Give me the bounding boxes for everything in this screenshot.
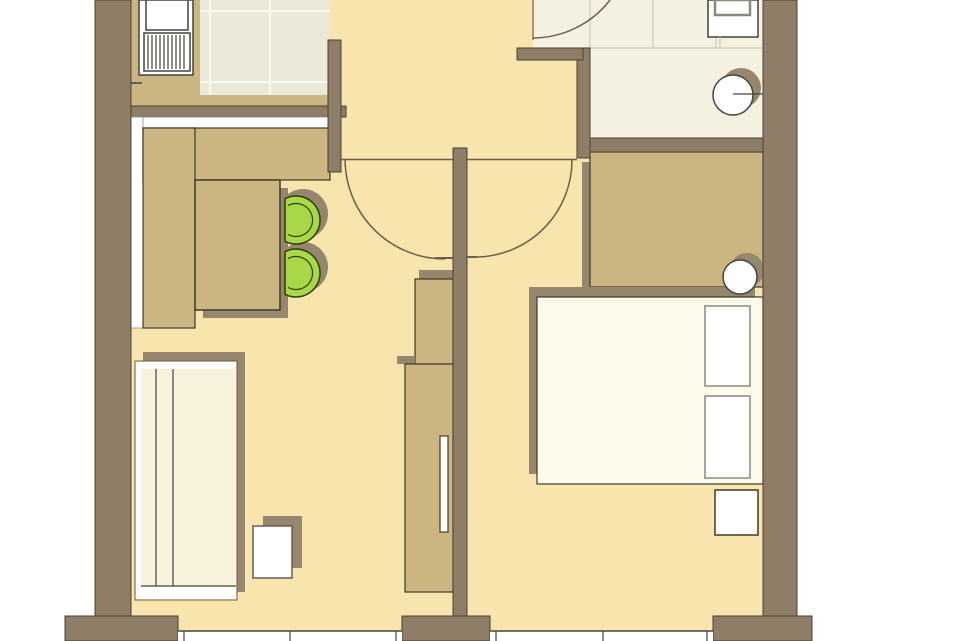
bed-pillow-2 (705, 396, 750, 478)
kitchen-sink-bowl (146, 0, 188, 30)
wall-bedroom-north (590, 138, 763, 152)
sofa-body (135, 361, 237, 600)
wall-pier-left (65, 616, 178, 641)
bed-pillow-1 (705, 306, 750, 386)
wall-right (763, 0, 797, 616)
sideboard-cabinet-left (143, 128, 195, 328)
washbasin (713, 75, 753, 115)
window-south-right (490, 631, 713, 641)
sofa-bottom-frame (141, 587, 236, 599)
wall-partition (453, 148, 467, 616)
tv-cabinet-upper (415, 279, 453, 364)
wall-bathroom-stub (517, 48, 583, 60)
floor-kitchen-tiles (200, 0, 330, 95)
sofa-top-frame (136, 362, 236, 369)
tv-cabinet-lower-shadow (397, 356, 415, 364)
sideboard-worktop-top (131, 117, 330, 128)
wall-bathroom-west (577, 48, 590, 158)
wall-kitchen-stub (328, 40, 341, 172)
wall-left (95, 0, 131, 617)
floor-plan (0, 0, 960, 641)
wall-north-kitchen (131, 106, 346, 117)
sofa-left-frame (136, 362, 141, 599)
side-table (253, 526, 292, 578)
kitchen-sink-drainer (144, 33, 190, 71)
dining-table (195, 180, 280, 310)
kitchen-counter-bottom (200, 95, 330, 106)
wall-pier-right (713, 616, 812, 641)
floor-bathroom-entry (533, 0, 590, 48)
tv-screen (440, 436, 448, 532)
bedside-stool (723, 260, 757, 294)
wall-pier-center (402, 616, 490, 641)
toilet-tank (715, 0, 750, 15)
floor-plan-canvas (0, 0, 960, 641)
nightstand (715, 490, 758, 535)
sideboard-worktop-left (131, 117, 143, 328)
